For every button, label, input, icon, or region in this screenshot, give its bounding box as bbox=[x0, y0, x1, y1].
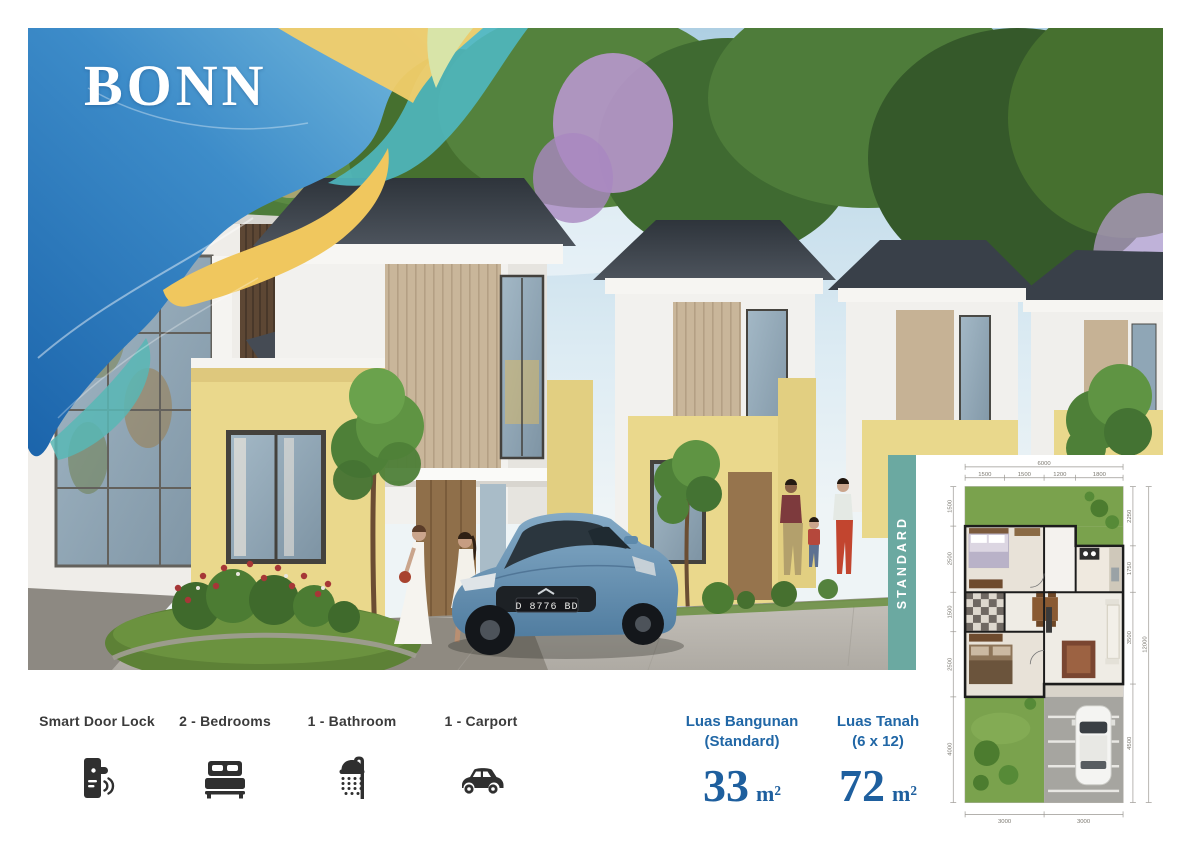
svg-text:1800: 1800 bbox=[1093, 472, 1107, 478]
front-garden bbox=[965, 697, 1044, 803]
license-plate-text: D 8776 BD bbox=[515, 602, 578, 613]
feature-carport: 1 - Carport bbox=[416, 712, 546, 802]
svg-text:12000: 12000 bbox=[1143, 636, 1149, 653]
area-value: 72m² bbox=[798, 763, 958, 809]
area-subtitle: (6 x 12) bbox=[798, 732, 958, 752]
car-icon bbox=[416, 754, 546, 802]
smart-door-lock-icon bbox=[32, 754, 162, 802]
area-unit: m² bbox=[892, 781, 917, 806]
svg-text:1200: 1200 bbox=[1053, 472, 1067, 478]
floor-plan: 6000 1500 1500 1200 1800 1500 2500 1500 … bbox=[940, 457, 1160, 842]
plan-variant-label: STANDARD bbox=[895, 516, 909, 609]
svg-text:4500: 4500 bbox=[1127, 736, 1133, 750]
product-title: BONN bbox=[84, 52, 268, 119]
svg-text:1750: 1750 bbox=[1127, 561, 1133, 575]
svg-text:1500: 1500 bbox=[947, 605, 953, 619]
feature-label: 2 - Bedrooms bbox=[160, 712, 290, 752]
area-title: Luas Tanah bbox=[798, 712, 958, 732]
svg-text:2250: 2250 bbox=[1127, 509, 1133, 523]
area-unit: m² bbox=[756, 781, 781, 806]
svg-text:6000: 6000 bbox=[1038, 461, 1052, 467]
shower-icon bbox=[287, 754, 417, 802]
svg-text:1500: 1500 bbox=[978, 472, 992, 478]
plan-variant-tab: STANDARD bbox=[888, 455, 916, 670]
svg-text:3500: 3500 bbox=[1127, 630, 1133, 644]
feature-label: 1 - Carport bbox=[416, 712, 546, 752]
feature-bedrooms: 2 - Bedrooms bbox=[160, 712, 290, 802]
area-land: Luas Tanah (6 x 12) 72m² bbox=[798, 712, 958, 809]
svg-text:2500: 2500 bbox=[947, 551, 953, 565]
feature-smart-door-lock: Smart Door Lock bbox=[32, 712, 162, 802]
svg-text:3000: 3000 bbox=[1077, 819, 1091, 825]
svg-text:1500: 1500 bbox=[947, 499, 953, 513]
car-plan bbox=[1072, 706, 1115, 785]
bed-icon bbox=[160, 754, 290, 802]
svg-text:2500: 2500 bbox=[947, 657, 953, 671]
feature-bathroom: 1 - Bathroom bbox=[287, 712, 417, 802]
svg-text:1500: 1500 bbox=[1018, 472, 1032, 478]
feature-label: 1 - Bathroom bbox=[287, 712, 417, 752]
feature-label: Smart Door Lock bbox=[32, 712, 162, 752]
svg-text:3000: 3000 bbox=[998, 819, 1012, 825]
brochure-page: D 8776 BD BONN STANDAR bbox=[0, 0, 1191, 842]
carport bbox=[1044, 684, 1123, 802]
